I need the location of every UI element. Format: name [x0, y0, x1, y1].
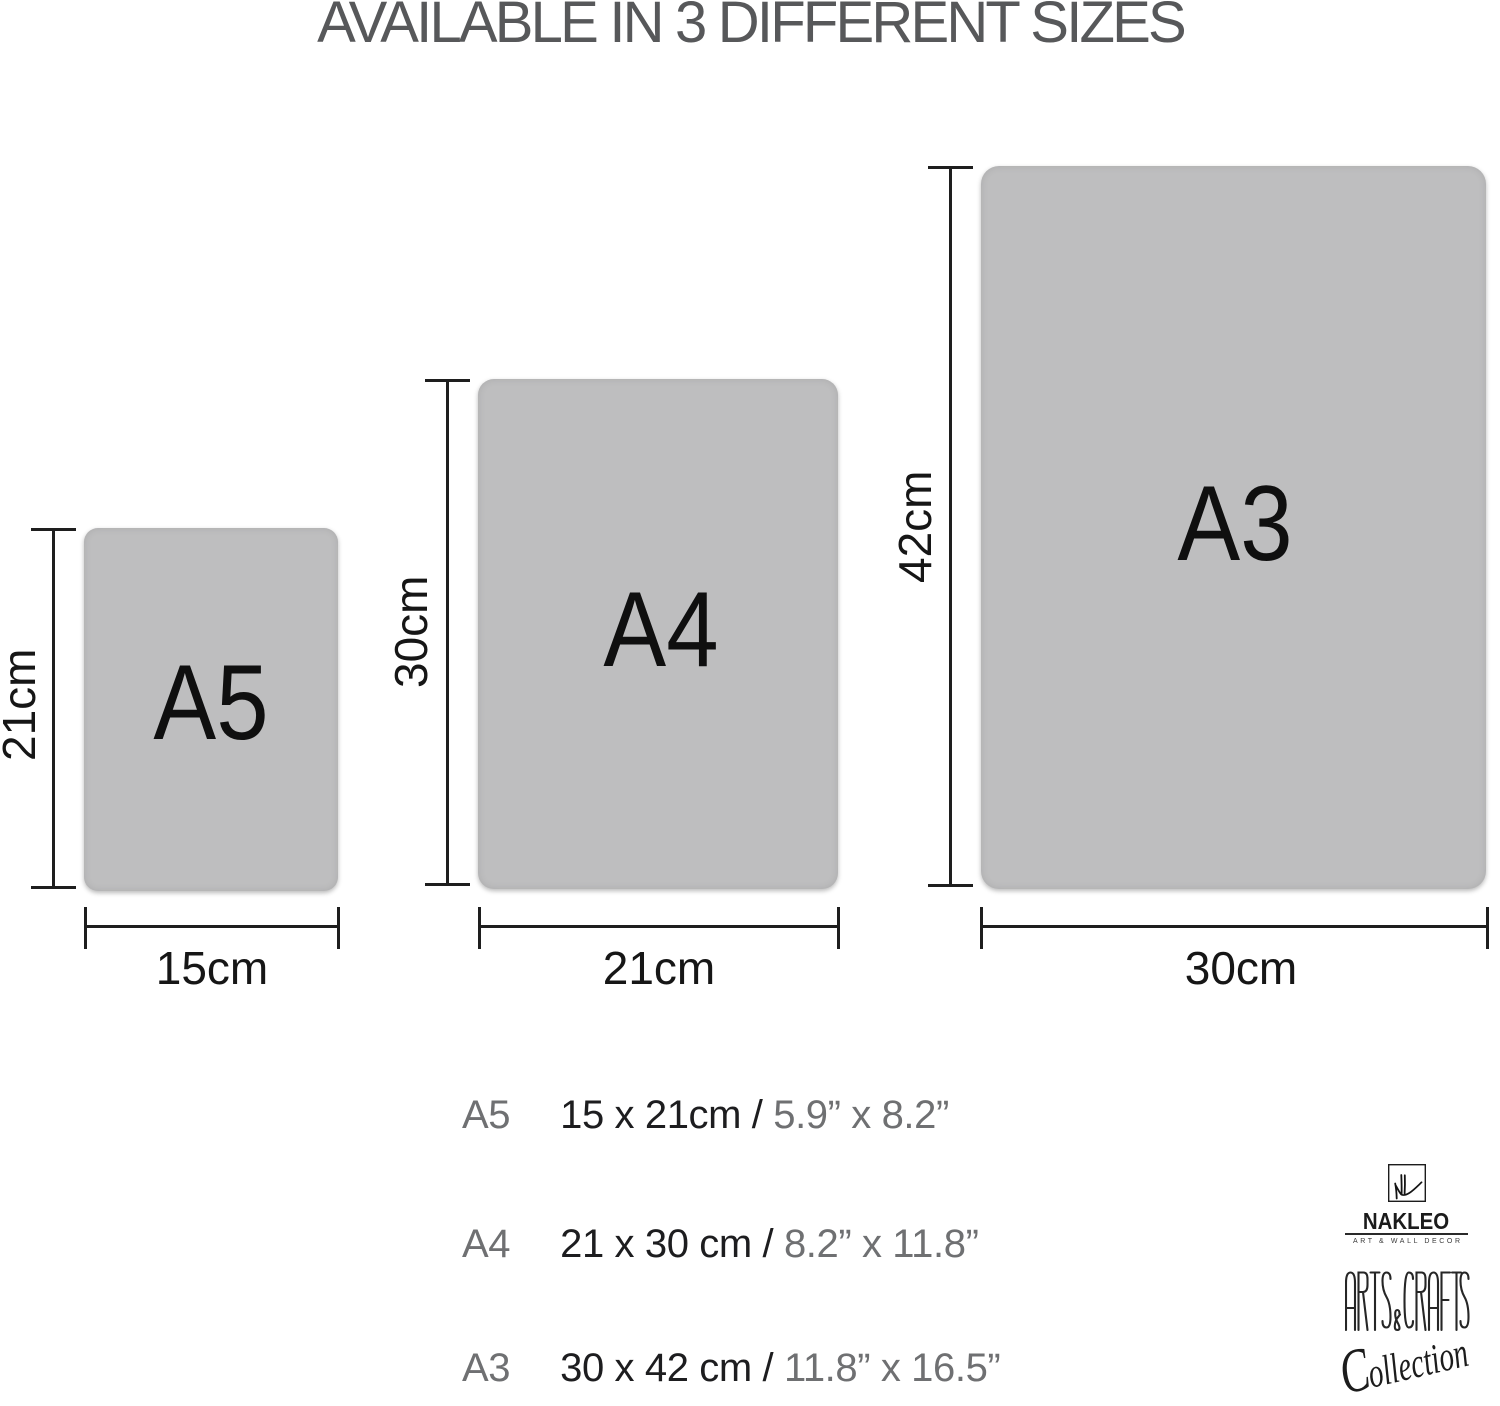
svg-text:Collection: Collection: [1336, 1326, 1473, 1406]
